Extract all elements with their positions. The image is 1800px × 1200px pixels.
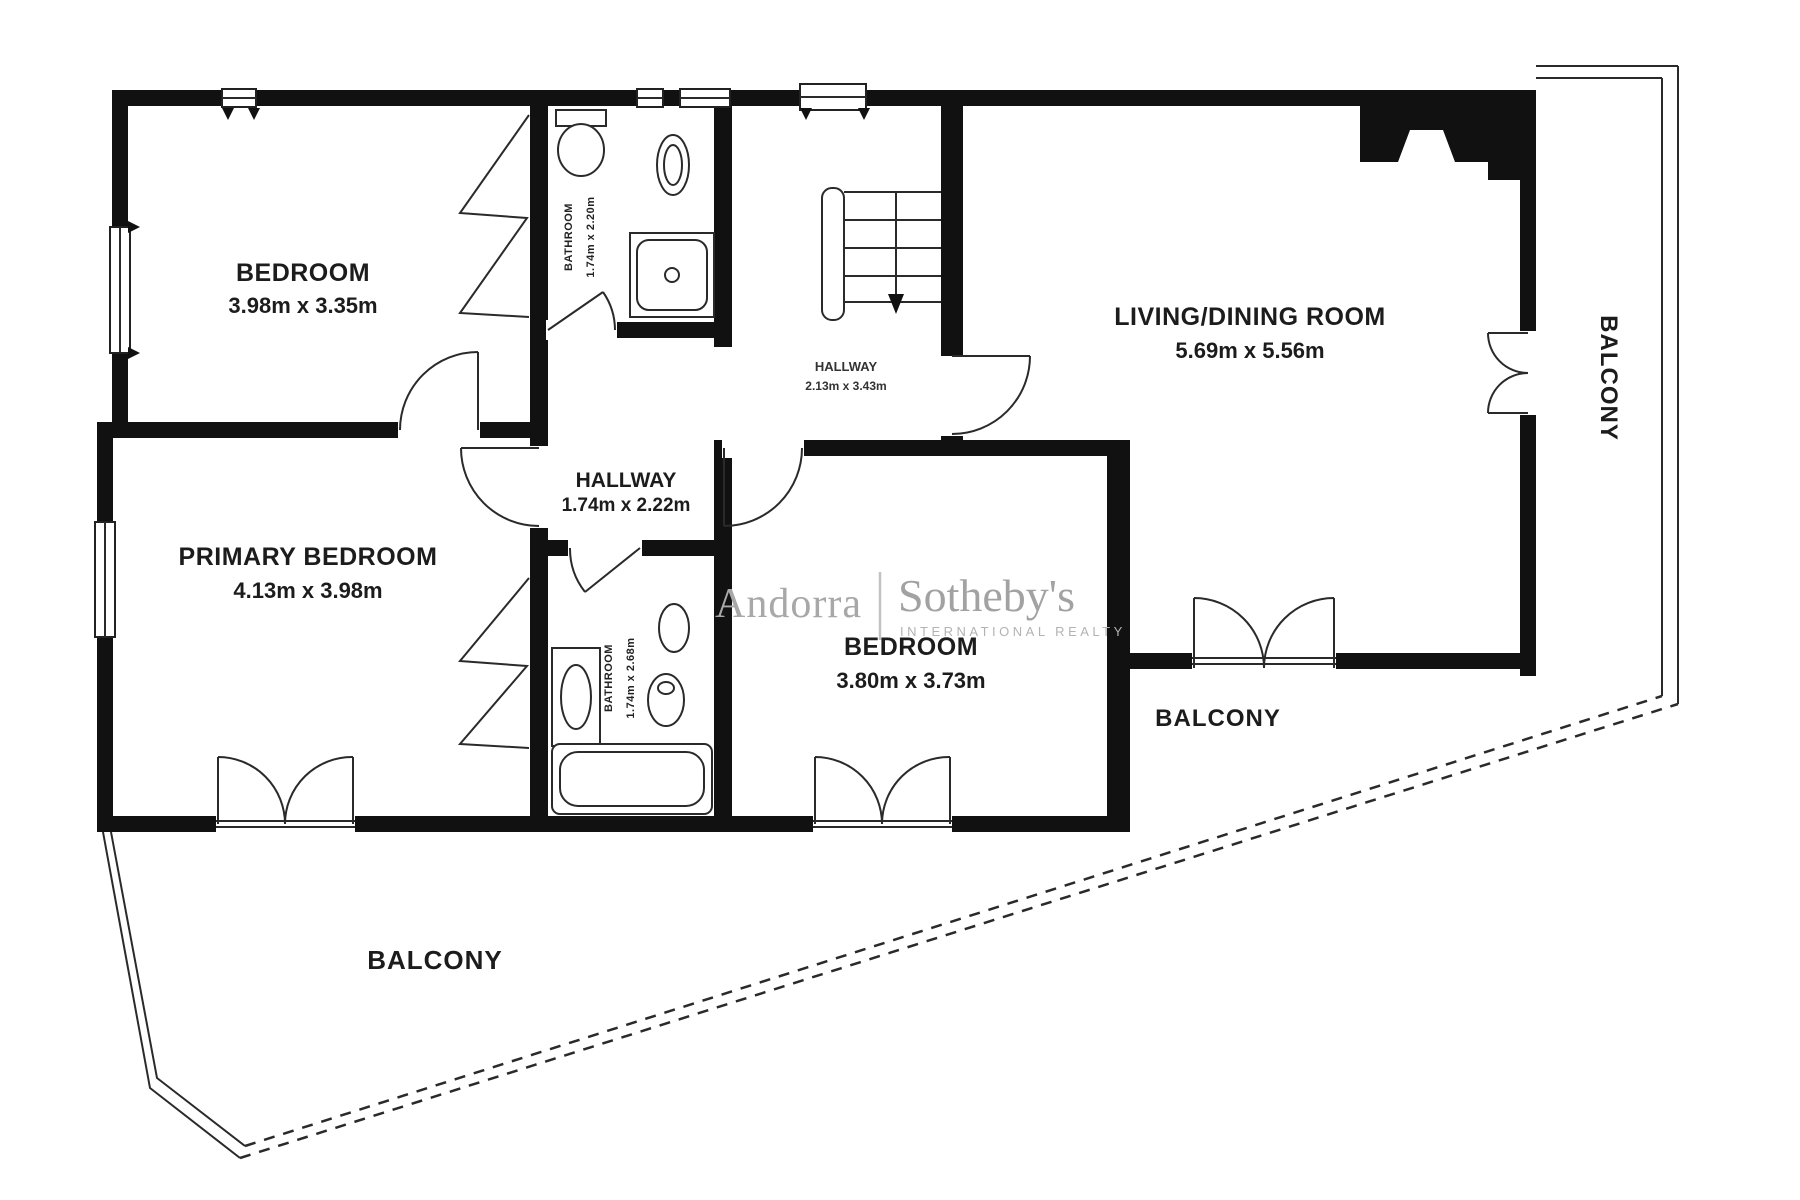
bathtub-icon bbox=[552, 744, 712, 814]
room-dims-living-dining: 5.69m x 5.56m bbox=[1175, 338, 1324, 363]
stairs bbox=[822, 188, 941, 320]
room-dims-hallway-top: 2.13m x 3.43m bbox=[805, 379, 886, 393]
walls bbox=[97, 90, 1536, 832]
door-bedroom-bottom bbox=[724, 448, 802, 526]
vanity-icon bbox=[552, 648, 600, 746]
stair-handrail bbox=[822, 188, 844, 320]
wardrobe-bifold-primary bbox=[460, 578, 529, 748]
room-label-living-dining: LIVING/DINING ROOM bbox=[1114, 303, 1386, 331]
watermark: Andorra Sotheby's INTERNATIONAL REALTY bbox=[715, 570, 1126, 640]
watermark-brand-right: Sotheby's bbox=[898, 570, 1075, 621]
room-label-bedroom-bottom: BEDROOM bbox=[844, 633, 978, 661]
dimension-ticks bbox=[128, 108, 870, 359]
shower-icon bbox=[630, 233, 714, 317]
door-primary-bedroom bbox=[461, 448, 539, 526]
door-bedroom-balcony-left bbox=[815, 757, 882, 824]
door-bedroom-top bbox=[400, 352, 478, 430]
sink-icon bbox=[659, 604, 689, 652]
door-primary-balcony-left bbox=[218, 757, 285, 824]
room-dims-hallway-center: 1.74m x 2.22m bbox=[562, 495, 691, 516]
balcony-label-bottom-middle: BALCONY bbox=[1155, 705, 1281, 732]
room-label-hallway-top: HALLWAY bbox=[815, 359, 878, 374]
room-label-hallway-center: HALLWAY bbox=[576, 469, 677, 492]
stairs-down-arrow-icon bbox=[888, 294, 904, 314]
fireplace bbox=[1360, 93, 1533, 180]
doors bbox=[218, 115, 1528, 824]
room-label-bathroom-bottom: BATHROOM bbox=[603, 644, 615, 712]
balcony-outline bbox=[103, 66, 1678, 1158]
room-label-bedroom-top: BEDROOM bbox=[236, 259, 370, 287]
balcony-label-right: BALCONY bbox=[1595, 315, 1622, 441]
room-dims-primary-bedroom: 4.13m x 3.98m bbox=[233, 578, 382, 603]
floor-plan: Andorra Sotheby's INTERNATIONAL REALTY B… bbox=[0, 0, 1800, 1200]
room-label-primary-bedroom: PRIMARY BEDROOM bbox=[179, 543, 438, 571]
room-dims-bathroom-bottom: 1.74m x 2.68m bbox=[625, 637, 637, 718]
door-bedroom-balcony-right bbox=[882, 757, 950, 824]
room-dims-bedroom-top: 3.98m x 3.35m bbox=[228, 293, 377, 318]
wall-openings bbox=[216, 320, 1538, 834]
room-label-bathroom-top: BATHROOM bbox=[563, 203, 575, 271]
wardrobe-bifold-bedroom-top bbox=[460, 115, 529, 317]
watermark-brand-left: Andorra bbox=[715, 581, 862, 627]
door-primary-balcony-right bbox=[285, 757, 353, 824]
toilet-bowl-icon bbox=[558, 124, 604, 176]
balcony-label-bottom-left: BALCONY bbox=[367, 945, 503, 975]
room-dims-bathroom-top: 1.74m x 2.20m bbox=[585, 196, 597, 277]
room-dims-bedroom-bottom: 3.80m x 3.73m bbox=[836, 668, 985, 693]
